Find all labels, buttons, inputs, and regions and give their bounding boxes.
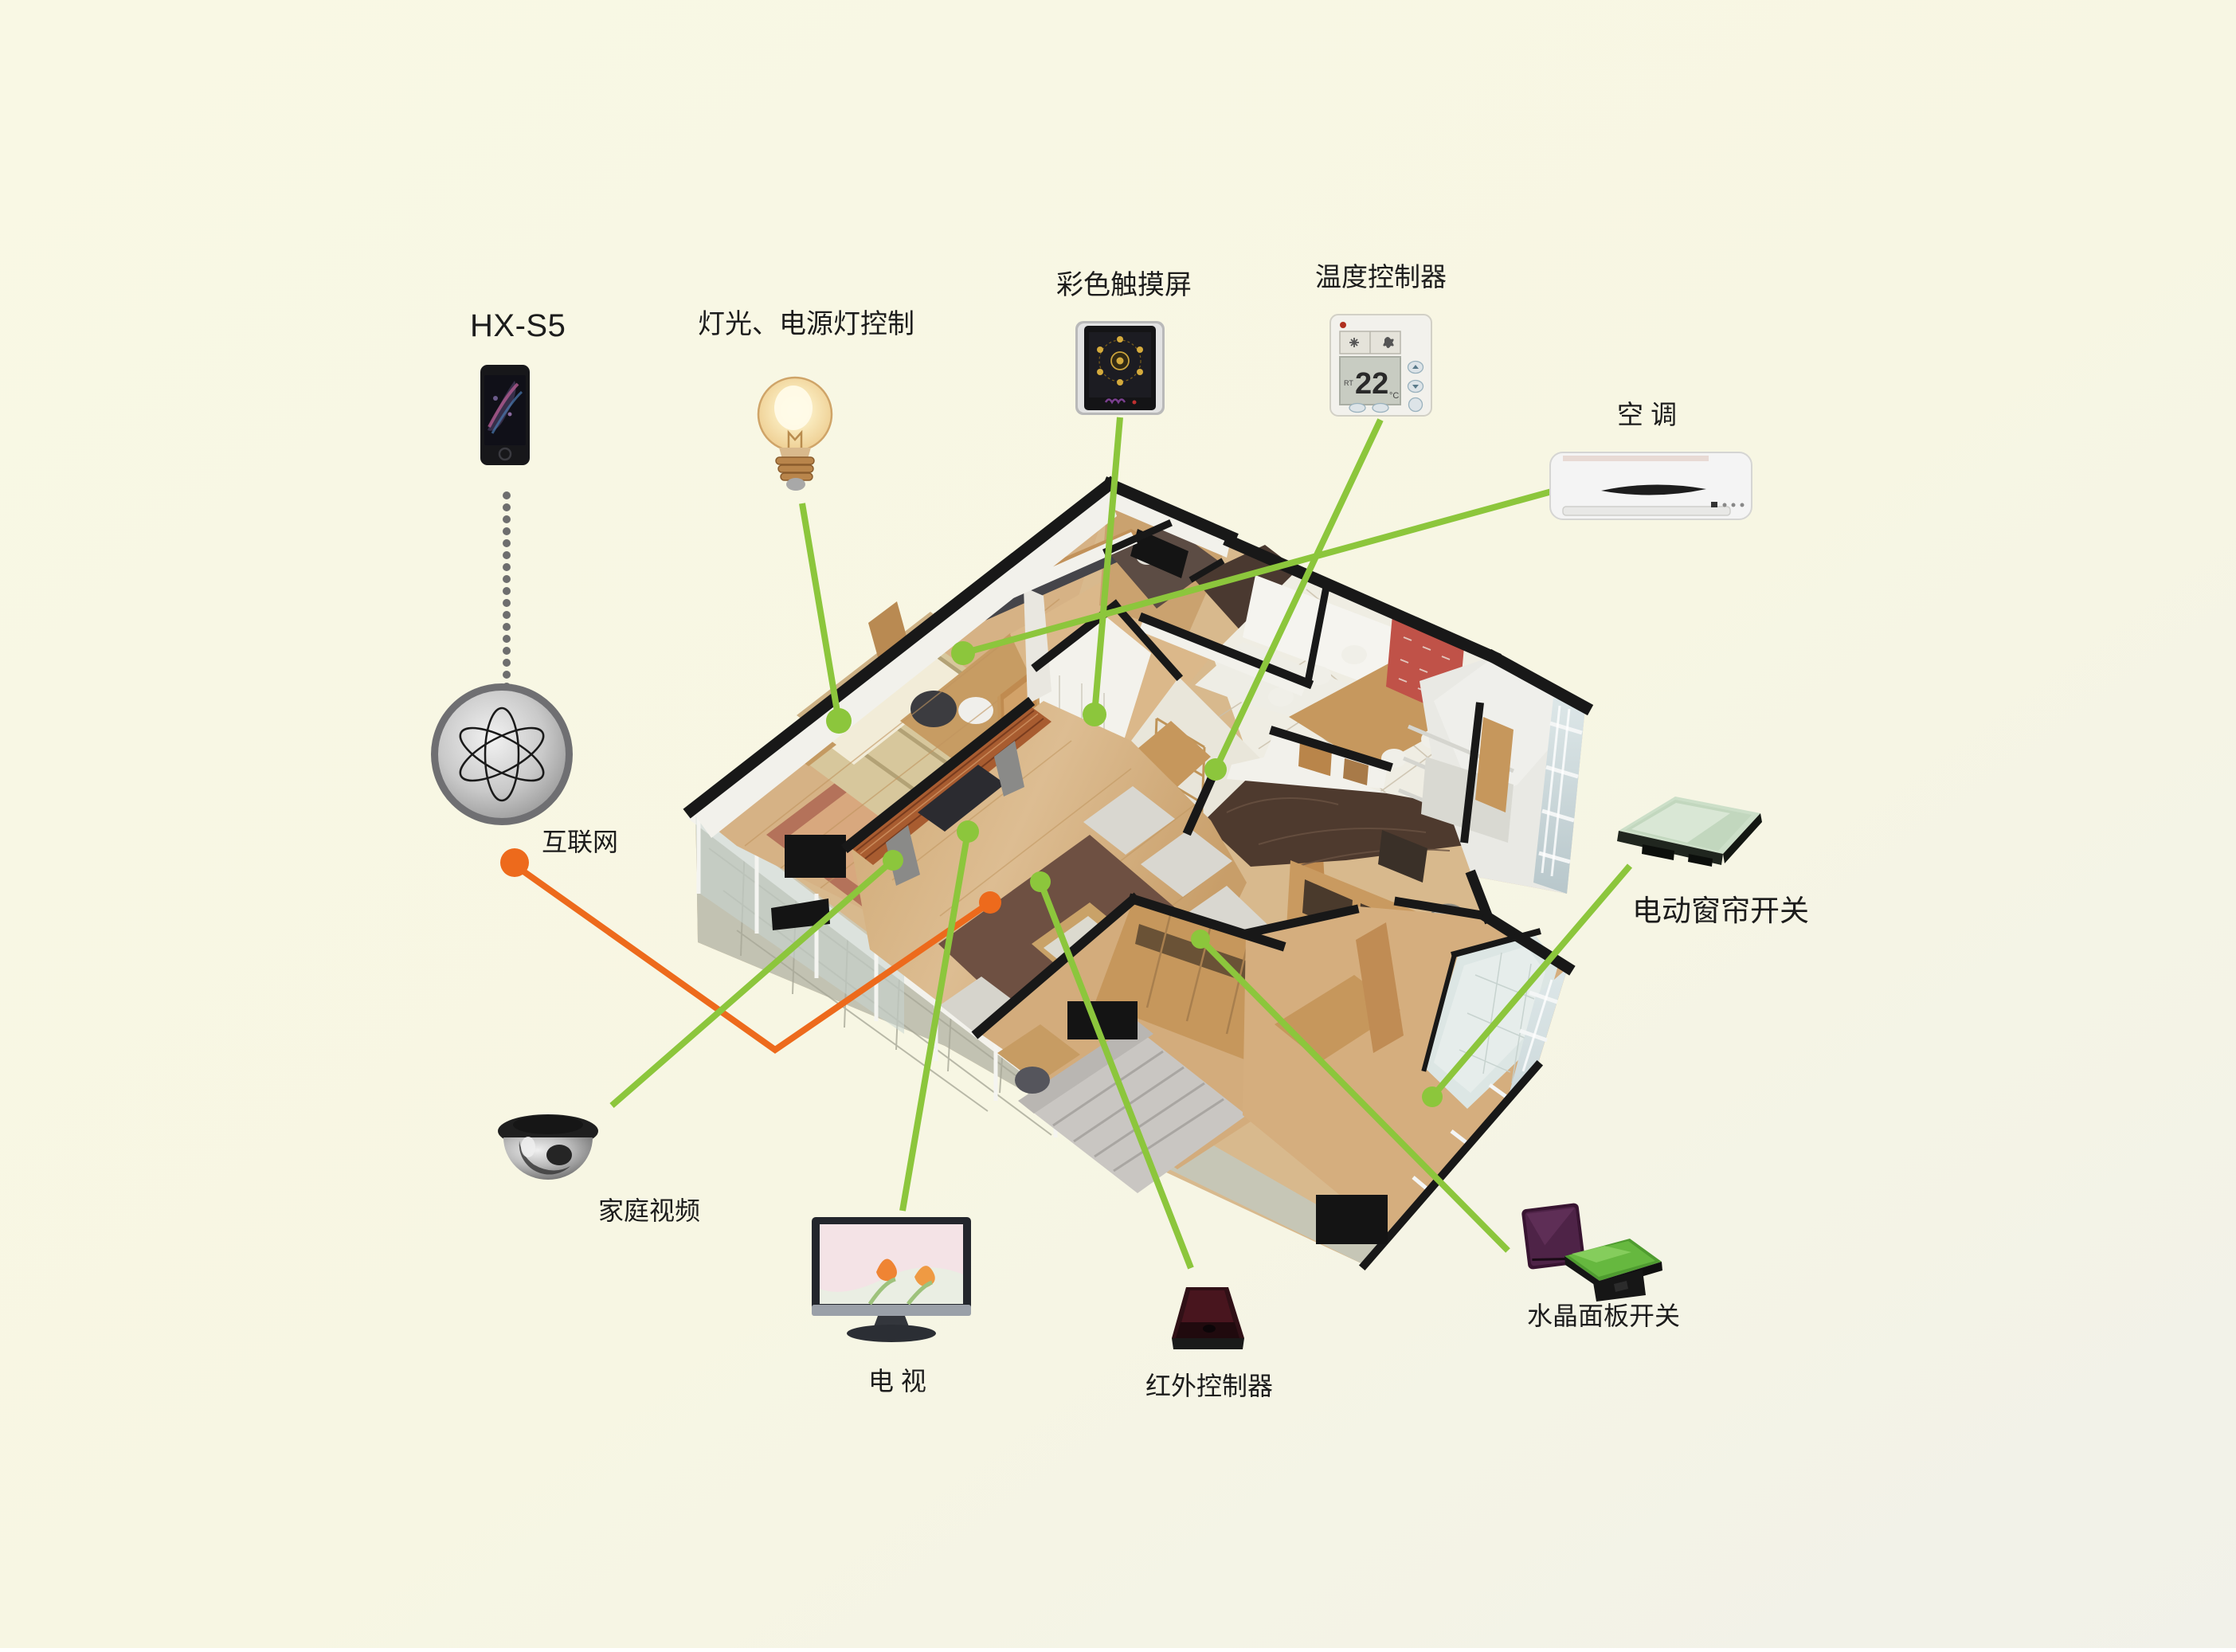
svg-text:红外控制器: 红外控制器 — [1145, 1372, 1273, 1400]
svg-text:HX-S5: HX-S5 — [470, 308, 566, 343]
svg-text:RT: RT — [1344, 379, 1353, 387]
svg-text:家庭视频: 家庭视频 — [598, 1196, 700, 1225]
svg-text:温度控制器: 温度控制器 — [1315, 262, 1447, 292]
svg-text:彩色触摸屏: 彩色触摸屏 — [1056, 270, 1192, 300]
svg-text:电动窗帘开关: 电动窗帘开关 — [1632, 895, 1809, 927]
svg-text:水晶面板开关: 水晶面板开关 — [1527, 1302, 1680, 1330]
svg-text:空 调: 空 调 — [1617, 400, 1677, 429]
svg-text:互联网: 互联网 — [542, 828, 618, 856]
svg-text:°C: °C — [1389, 391, 1399, 401]
svg-text:电 视: 电 视 — [868, 1367, 926, 1396]
svg-text:灯光、电源灯控制: 灯光、电源灯控制 — [698, 309, 914, 339]
svg-text:22: 22 — [1355, 367, 1388, 401]
